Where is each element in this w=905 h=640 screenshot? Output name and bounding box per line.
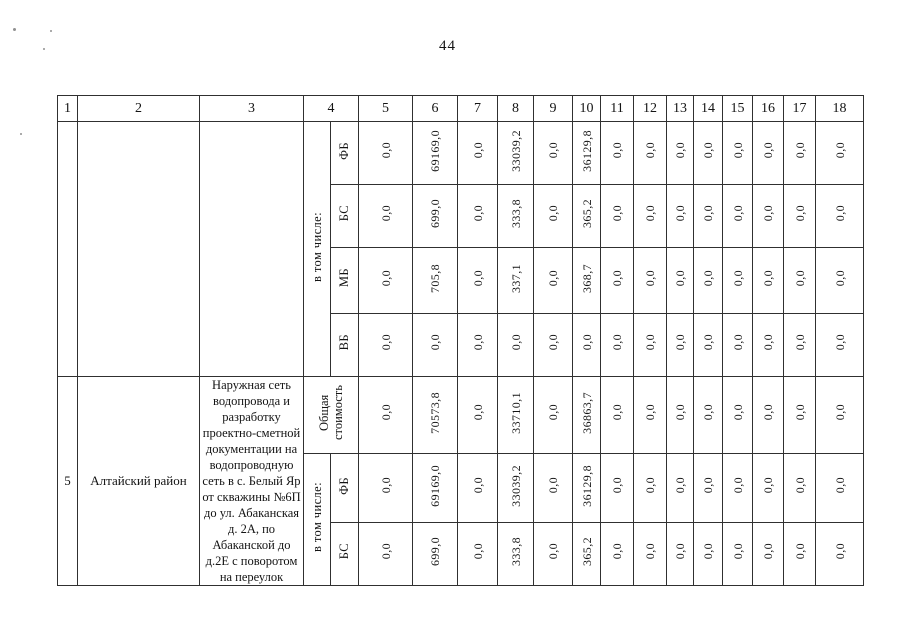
amount-cell: 0,0 xyxy=(413,314,458,377)
amount-cell: 0,0 xyxy=(694,523,723,586)
amount: 0,0 xyxy=(794,205,806,221)
amount: 368,7 xyxy=(581,264,593,293)
budget-type-cell: ВБ xyxy=(331,314,359,377)
amount-cell: 0,0 xyxy=(359,248,413,314)
amount-cell: 0,0 xyxy=(784,314,816,377)
amount: 33039,2 xyxy=(510,465,522,507)
col-header: 8 xyxy=(498,96,534,122)
amount-cell: 0,0 xyxy=(694,248,723,314)
amount: 0,0 xyxy=(762,142,774,158)
amount-cell: 0,0 xyxy=(753,185,784,248)
col-header: 15 xyxy=(723,96,753,122)
amount-cell: 333,8 xyxy=(498,523,534,586)
amount-cell: 0,0 xyxy=(753,454,784,523)
table-row-fb-top: в том числе: ФБ 0,0 69169,0 0,0 33039,2 … xyxy=(58,122,864,185)
amount: 0,0 xyxy=(547,270,559,286)
amount-cell: 337,1 xyxy=(498,248,534,314)
amount: 0,0 xyxy=(794,334,806,350)
amount: 0,0 xyxy=(380,543,392,559)
amount: 0,0 xyxy=(380,334,392,350)
amount: 0,0 xyxy=(834,142,846,158)
col-header: 1 xyxy=(58,96,78,122)
amount-cell: 36129,8 xyxy=(573,122,601,185)
col-header: 7 xyxy=(458,96,498,122)
amount-cell: 0,0 xyxy=(753,314,784,377)
amount-cell: 0,0 xyxy=(753,377,784,454)
amount: 0,0 xyxy=(380,205,392,221)
amount: 0,0 xyxy=(547,334,559,350)
budget-type-label: БС xyxy=(338,543,351,559)
amount-cell: 0,0 xyxy=(359,185,413,248)
amount: 0,0 xyxy=(702,477,714,493)
amount-cell: 0,0 xyxy=(784,523,816,586)
empty-number-cell xyxy=(58,122,78,377)
amount-cell: 333,8 xyxy=(498,185,534,248)
budget-type-cell: МБ xyxy=(331,248,359,314)
amount-cell: 0,0 xyxy=(723,248,753,314)
amount-cell: 0,0 xyxy=(601,314,634,377)
budget-type-label: МБ xyxy=(338,268,351,287)
amount-cell: 0,0 xyxy=(667,454,694,523)
amount: 0,0 xyxy=(794,142,806,158)
amount-cell: 70573,8 xyxy=(413,377,458,454)
col-header: 2 xyxy=(78,96,200,122)
budget-table: 1 2 3 4 5 6 7 8 9 10 11 12 13 14 15 16 1… xyxy=(57,95,864,586)
amount-cell: 0,0 xyxy=(723,122,753,185)
col-header: 10 xyxy=(573,96,601,122)
col-header: 11 xyxy=(601,96,634,122)
amount-cell: 0,0 xyxy=(458,314,498,377)
empty-description-cell xyxy=(200,122,304,377)
amount-cell: 0,0 xyxy=(634,454,667,523)
col-header: 12 xyxy=(634,96,667,122)
amount-cell: 0,0 xyxy=(534,314,573,377)
amount: 0,0 xyxy=(834,334,846,350)
amount-cell: 69169,0 xyxy=(413,122,458,185)
amount: 365,2 xyxy=(581,537,593,566)
amount-cell: 0,0 xyxy=(816,523,864,586)
amount-cell: 0,0 xyxy=(784,248,816,314)
budget-type-label: ФБ xyxy=(338,477,351,495)
amount: 0,0 xyxy=(674,205,686,221)
amount-cell: 0,0 xyxy=(667,248,694,314)
amount-cell: 0,0 xyxy=(816,314,864,377)
amount-cell: 365,2 xyxy=(573,185,601,248)
in-total-label: в том числе: xyxy=(311,212,324,282)
amount-cell: 0,0 xyxy=(784,122,816,185)
amount-cell: 0,0 xyxy=(534,248,573,314)
amount-cell: 0,0 xyxy=(634,377,667,454)
amount-cell: 0,0 xyxy=(458,248,498,314)
amount: 0,0 xyxy=(380,477,392,493)
document-page: 44 1 2 3 4 5 6 7 8 9 10 11 12 xyxy=(0,0,905,640)
amount: 0,0 xyxy=(472,142,484,158)
amount: 0,0 xyxy=(732,270,744,286)
amount-cell: 0,0 xyxy=(534,185,573,248)
amount-cell: 0,0 xyxy=(667,314,694,377)
amount: 705,8 xyxy=(429,264,441,293)
amount: 0,0 xyxy=(644,142,656,158)
amount: 0,0 xyxy=(547,142,559,158)
amount-cell: 0,0 xyxy=(458,377,498,454)
col-header: 18 xyxy=(816,96,864,122)
amount: 0,0 xyxy=(794,477,806,493)
budget-type-cell: ФБ xyxy=(331,454,359,523)
total-cost-label: Общая стоимость xyxy=(317,378,345,448)
amount: 0,0 xyxy=(510,334,522,350)
budget-type-cell: БС xyxy=(331,523,359,586)
amount: 0,0 xyxy=(611,142,623,158)
amount: 69169,0 xyxy=(429,130,441,172)
amount-cell: 0,0 xyxy=(601,377,634,454)
amount-cell: 0,0 xyxy=(816,377,864,454)
amount-cell: 0,0 xyxy=(723,523,753,586)
amount: 33710,1 xyxy=(510,392,522,434)
amount: 0,0 xyxy=(762,270,774,286)
amount: 0,0 xyxy=(762,404,774,420)
amount: 0,0 xyxy=(547,205,559,221)
col-header: 14 xyxy=(694,96,723,122)
amount-cell: 0,0 xyxy=(816,185,864,248)
budget-type-label: ФБ xyxy=(338,142,351,160)
amount-cell: 0,0 xyxy=(784,185,816,248)
amount: 69169,0 xyxy=(429,465,441,507)
amount: 0,0 xyxy=(732,477,744,493)
amount-cell: 0,0 xyxy=(534,122,573,185)
amount-cell: 33039,2 xyxy=(498,454,534,523)
amount: 0,0 xyxy=(762,477,774,493)
amount-cell: 0,0 xyxy=(634,523,667,586)
amount: 0,0 xyxy=(644,334,656,350)
empty-district-cell xyxy=(78,122,200,377)
amount-cell: 0,0 xyxy=(784,454,816,523)
amount-cell: 0,0 xyxy=(601,454,634,523)
amount-cell: 0,0 xyxy=(816,454,864,523)
amount-cell: 0,0 xyxy=(723,377,753,454)
amount: 0,0 xyxy=(834,404,846,420)
amount-cell: 705,8 xyxy=(413,248,458,314)
amount: 333,8 xyxy=(510,537,522,566)
amount-cell: 0,0 xyxy=(601,122,634,185)
amount: 36129,8 xyxy=(581,130,593,172)
col-header: 9 xyxy=(534,96,573,122)
amount-cell: 33710,1 xyxy=(498,377,534,454)
amount-cell: 0,0 xyxy=(359,122,413,185)
amount-cell: 36863,7 xyxy=(573,377,601,454)
amount: 0,0 xyxy=(380,270,392,286)
amount-cell: 0,0 xyxy=(359,377,413,454)
amount: 0,0 xyxy=(702,142,714,158)
amount: 36863,7 xyxy=(581,392,593,434)
amount: 0,0 xyxy=(674,334,686,350)
amount-cell: 0,0 xyxy=(667,185,694,248)
amount-cell: 0,0 xyxy=(601,523,634,586)
amount: 699,0 xyxy=(429,199,441,228)
amount-cell: 0,0 xyxy=(723,454,753,523)
amount: 699,0 xyxy=(429,537,441,566)
page-number: 44 xyxy=(0,38,895,55)
amount: 0,0 xyxy=(702,270,714,286)
amount: 0,0 xyxy=(834,543,846,559)
amount-cell: 0,0 xyxy=(723,185,753,248)
amount: 337,1 xyxy=(510,264,522,293)
object-description-cell: Наружная сеть водопровода и разработку п… xyxy=(200,377,304,586)
amount: 0,0 xyxy=(611,334,623,350)
amount: 0,0 xyxy=(472,477,484,493)
amount: 0,0 xyxy=(674,142,686,158)
col-header: 16 xyxy=(753,96,784,122)
total-cost-cell: Общая стоимость xyxy=(304,377,359,454)
amount: 365,2 xyxy=(581,199,593,228)
col-header: 4 xyxy=(304,96,359,122)
amount-cell: 368,7 xyxy=(573,248,601,314)
amount: 0,0 xyxy=(644,477,656,493)
amount: 0,0 xyxy=(472,205,484,221)
amount-cell: 0,0 xyxy=(694,454,723,523)
amount-cell: 0,0 xyxy=(694,314,723,377)
amount: 0,0 xyxy=(702,205,714,221)
amount: 0,0 xyxy=(794,404,806,420)
amount: 0,0 xyxy=(472,270,484,286)
in-total-cell: в том числе: xyxy=(304,122,331,377)
amount-cell: 0,0 xyxy=(816,122,864,185)
amount-cell: 0,0 xyxy=(359,314,413,377)
row-number-cell: 5 xyxy=(58,377,78,586)
amount: 0,0 xyxy=(762,334,774,350)
amount: 0,0 xyxy=(674,477,686,493)
amount-cell: 0,0 xyxy=(534,377,573,454)
amount: 0,0 xyxy=(834,270,846,286)
amount-cell: 0,0 xyxy=(359,454,413,523)
amount: 0,0 xyxy=(380,404,392,420)
amount-cell: 0,0 xyxy=(634,248,667,314)
amount-cell: 0,0 xyxy=(667,523,694,586)
amount: 0,0 xyxy=(644,270,656,286)
amount-cell: 0,0 xyxy=(753,523,784,586)
amount: 0,0 xyxy=(429,334,441,350)
amount-cell: 0,0 xyxy=(753,248,784,314)
amount-cell: 0,0 xyxy=(534,454,573,523)
amount-cell: 36129,8 xyxy=(573,454,601,523)
amount-cell: 0,0 xyxy=(634,314,667,377)
amount-cell: 0,0 xyxy=(694,122,723,185)
amount: 0,0 xyxy=(732,205,744,221)
col-header: 3 xyxy=(200,96,304,122)
budget-type-cell: ФБ xyxy=(331,122,359,185)
amount: 0,0 xyxy=(834,477,846,493)
amount: 0,0 xyxy=(380,142,392,158)
amount: 0,0 xyxy=(674,270,686,286)
amount: 0,0 xyxy=(794,543,806,559)
amount-cell: 0,0 xyxy=(816,248,864,314)
amount-cell: 0,0 xyxy=(723,314,753,377)
amount-cell: 699,0 xyxy=(413,523,458,586)
amount: 333,8 xyxy=(510,199,522,228)
amount-cell: 0,0 xyxy=(458,523,498,586)
col-header: 5 xyxy=(359,96,413,122)
amount: 0,0 xyxy=(581,334,593,350)
col-header: 17 xyxy=(784,96,816,122)
amount: 0,0 xyxy=(644,404,656,420)
scan-speck xyxy=(13,28,16,31)
amount-cell: 0,0 xyxy=(601,248,634,314)
amount-cell: 0,0 xyxy=(534,523,573,586)
amount-cell: 69169,0 xyxy=(413,454,458,523)
col-header: 13 xyxy=(667,96,694,122)
amount-cell: 0,0 xyxy=(359,523,413,586)
amount: 0,0 xyxy=(547,543,559,559)
amount: 0,0 xyxy=(732,142,744,158)
amount-cell: 0,0 xyxy=(667,377,694,454)
amount: 0,0 xyxy=(644,543,656,559)
amount: 0,0 xyxy=(611,543,623,559)
amount: 0,0 xyxy=(762,543,774,559)
amount: 0,0 xyxy=(472,334,484,350)
amount: 0,0 xyxy=(644,205,656,221)
amount: 0,0 xyxy=(611,270,623,286)
amount-cell: 0,0 xyxy=(694,377,723,454)
amount: 0,0 xyxy=(611,404,623,420)
scan-speck xyxy=(20,133,22,135)
amount: 0,0 xyxy=(732,404,744,420)
amount-cell: 0,0 xyxy=(753,122,784,185)
amount: 36129,8 xyxy=(581,465,593,507)
amount: 0,0 xyxy=(547,404,559,420)
amount-cell: 0,0 xyxy=(601,185,634,248)
scan-speck xyxy=(50,30,52,32)
amount: 0,0 xyxy=(762,205,774,221)
budget-type-label: ВБ xyxy=(338,334,351,350)
amount: 0,0 xyxy=(702,334,714,350)
amount-cell: 0,0 xyxy=(458,185,498,248)
col-header: 6 xyxy=(413,96,458,122)
in-total-label: в том числе: xyxy=(311,482,324,552)
budget-type-label: БС xyxy=(338,205,351,221)
budget-type-cell: БС xyxy=(331,185,359,248)
amount: 0,0 xyxy=(702,543,714,559)
amount: 0,0 xyxy=(732,543,744,559)
in-total-cell: в том числе: xyxy=(304,454,331,586)
table-row-total-cost: 5 Алтайский район Наружная сеть водопров… xyxy=(58,377,864,454)
amount-cell: 0,0 xyxy=(784,377,816,454)
header-row: 1 2 3 4 5 6 7 8 9 10 11 12 13 14 15 16 1… xyxy=(58,96,864,122)
amount: 0,0 xyxy=(472,543,484,559)
amount-cell: 699,0 xyxy=(413,185,458,248)
amount-cell: 365,2 xyxy=(573,523,601,586)
amount-cell: 0,0 xyxy=(667,122,694,185)
amount: 0,0 xyxy=(834,205,846,221)
amount: 0,0 xyxy=(611,205,623,221)
amount-cell: 0,0 xyxy=(498,314,534,377)
amount-cell: 0,0 xyxy=(694,185,723,248)
amount: 33039,2 xyxy=(510,130,522,172)
amount-cell: 0,0 xyxy=(573,314,601,377)
amount: 0,0 xyxy=(674,543,686,559)
amount: 70573,8 xyxy=(429,392,441,434)
amount: 0,0 xyxy=(547,477,559,493)
amount: 0,0 xyxy=(732,334,744,350)
district-cell: Алтайский район xyxy=(78,377,200,586)
amount: 0,0 xyxy=(611,477,623,493)
amount-cell: 0,0 xyxy=(458,454,498,523)
amount-cell: 0,0 xyxy=(634,185,667,248)
amount: 0,0 xyxy=(702,404,714,420)
amount-cell: 0,0 xyxy=(634,122,667,185)
amount: 0,0 xyxy=(472,404,484,420)
amount-cell: 33039,2 xyxy=(498,122,534,185)
amount: 0,0 xyxy=(794,270,806,286)
amount: 0,0 xyxy=(674,404,686,420)
amount-cell: 0,0 xyxy=(458,122,498,185)
